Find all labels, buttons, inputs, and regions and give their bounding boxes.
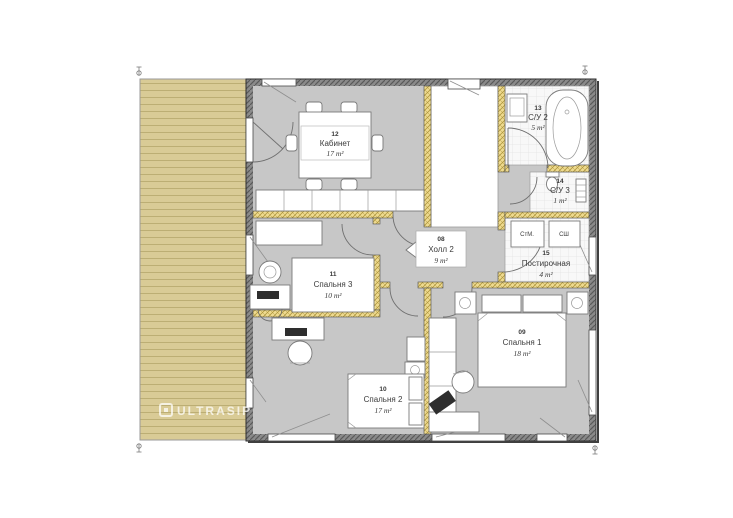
window-top-kabinet [262,79,296,86]
room-hall-name: Холл 2 [428,245,454,254]
room-su3-area: 1 m² [553,196,567,205]
room-kabinet-number: 12 [331,131,339,138]
room-su2-name: С/У 2 [528,113,548,122]
bathtub [546,90,588,166]
room-su2-area: 5 m² [531,123,545,132]
room-bedroom2-number: 10 [379,386,387,393]
room-laundry-area: 4 m² [539,270,553,279]
dresser [407,337,425,361]
pillow [409,403,422,425]
room-su2-number: 13 [534,105,542,112]
chair [341,179,357,190]
chair [306,102,322,113]
window-right-bedroom1 [589,330,596,415]
plant [259,261,281,283]
room-bedroom3-area: 10 m² [324,291,342,300]
marker-icon [137,67,142,75]
washing-machine-label: СтМ. [520,232,534,238]
floor-plan: 12 Кабинет 17 m² 13 С/У 2 5 m² 14 С/У 3 … [0,0,733,518]
room-bedroom1-area: 18 m² [513,349,531,358]
room-bedroom2-area: 17 m² [374,406,392,415]
keyboard [285,328,307,336]
keyboard [257,291,279,299]
terrace-deck [140,79,247,440]
nightstand [567,292,588,314]
toilet-tank [546,172,559,177]
cabinet [256,221,322,245]
towel-radiator [576,179,586,202]
marker-icon [583,66,588,74]
brand-watermark-text: ULTRASIP [177,404,252,418]
window-right-laundry [589,237,596,275]
room-su3-number: 14 [556,178,564,185]
chair [372,135,383,151]
room-hall-area: 9 m² [434,256,448,265]
room-kabinet-area: 17 m² [326,149,344,158]
room-kabinet-name: Кабинет [320,139,351,148]
office-chair [452,371,474,393]
marker-icon [137,444,142,452]
pillow [409,377,422,400]
drying-cabinet-label: СШ [559,232,569,238]
room-bedroom3-number: 11 [330,271,337,278]
stairwell-void [431,86,498,227]
pillow [482,295,521,312]
wardrobe-row [256,190,424,211]
room-bedroom1-number: 09 [518,329,526,336]
room-bedroom2-name: Спальня 2 [364,395,403,404]
chair [286,135,297,151]
marker-icon [593,446,598,454]
desk [429,412,479,432]
nightstand [455,292,476,314]
chair [306,179,322,190]
room-laundry-name: Постирочная [522,259,570,268]
room-su3-name: С/У 3 [550,186,570,195]
office-chair [288,341,312,365]
room-bedroom3-name: Спальня 3 [314,280,353,289]
room-bedroom1-name: Спальня 1 [503,338,542,347]
pillow [523,295,562,312]
window-left-1 [246,235,253,275]
room-laundry-number: 15 [542,250,550,257]
window-bottom-bedroom2 [268,434,335,441]
room-hall-number: 08 [437,236,445,243]
terrace-door-opening [246,118,253,162]
chair [341,102,357,113]
floor-plan-page: 12 Кабинет 17 m² 13 С/У 2 5 m² 14 С/У 3 … [0,0,733,518]
